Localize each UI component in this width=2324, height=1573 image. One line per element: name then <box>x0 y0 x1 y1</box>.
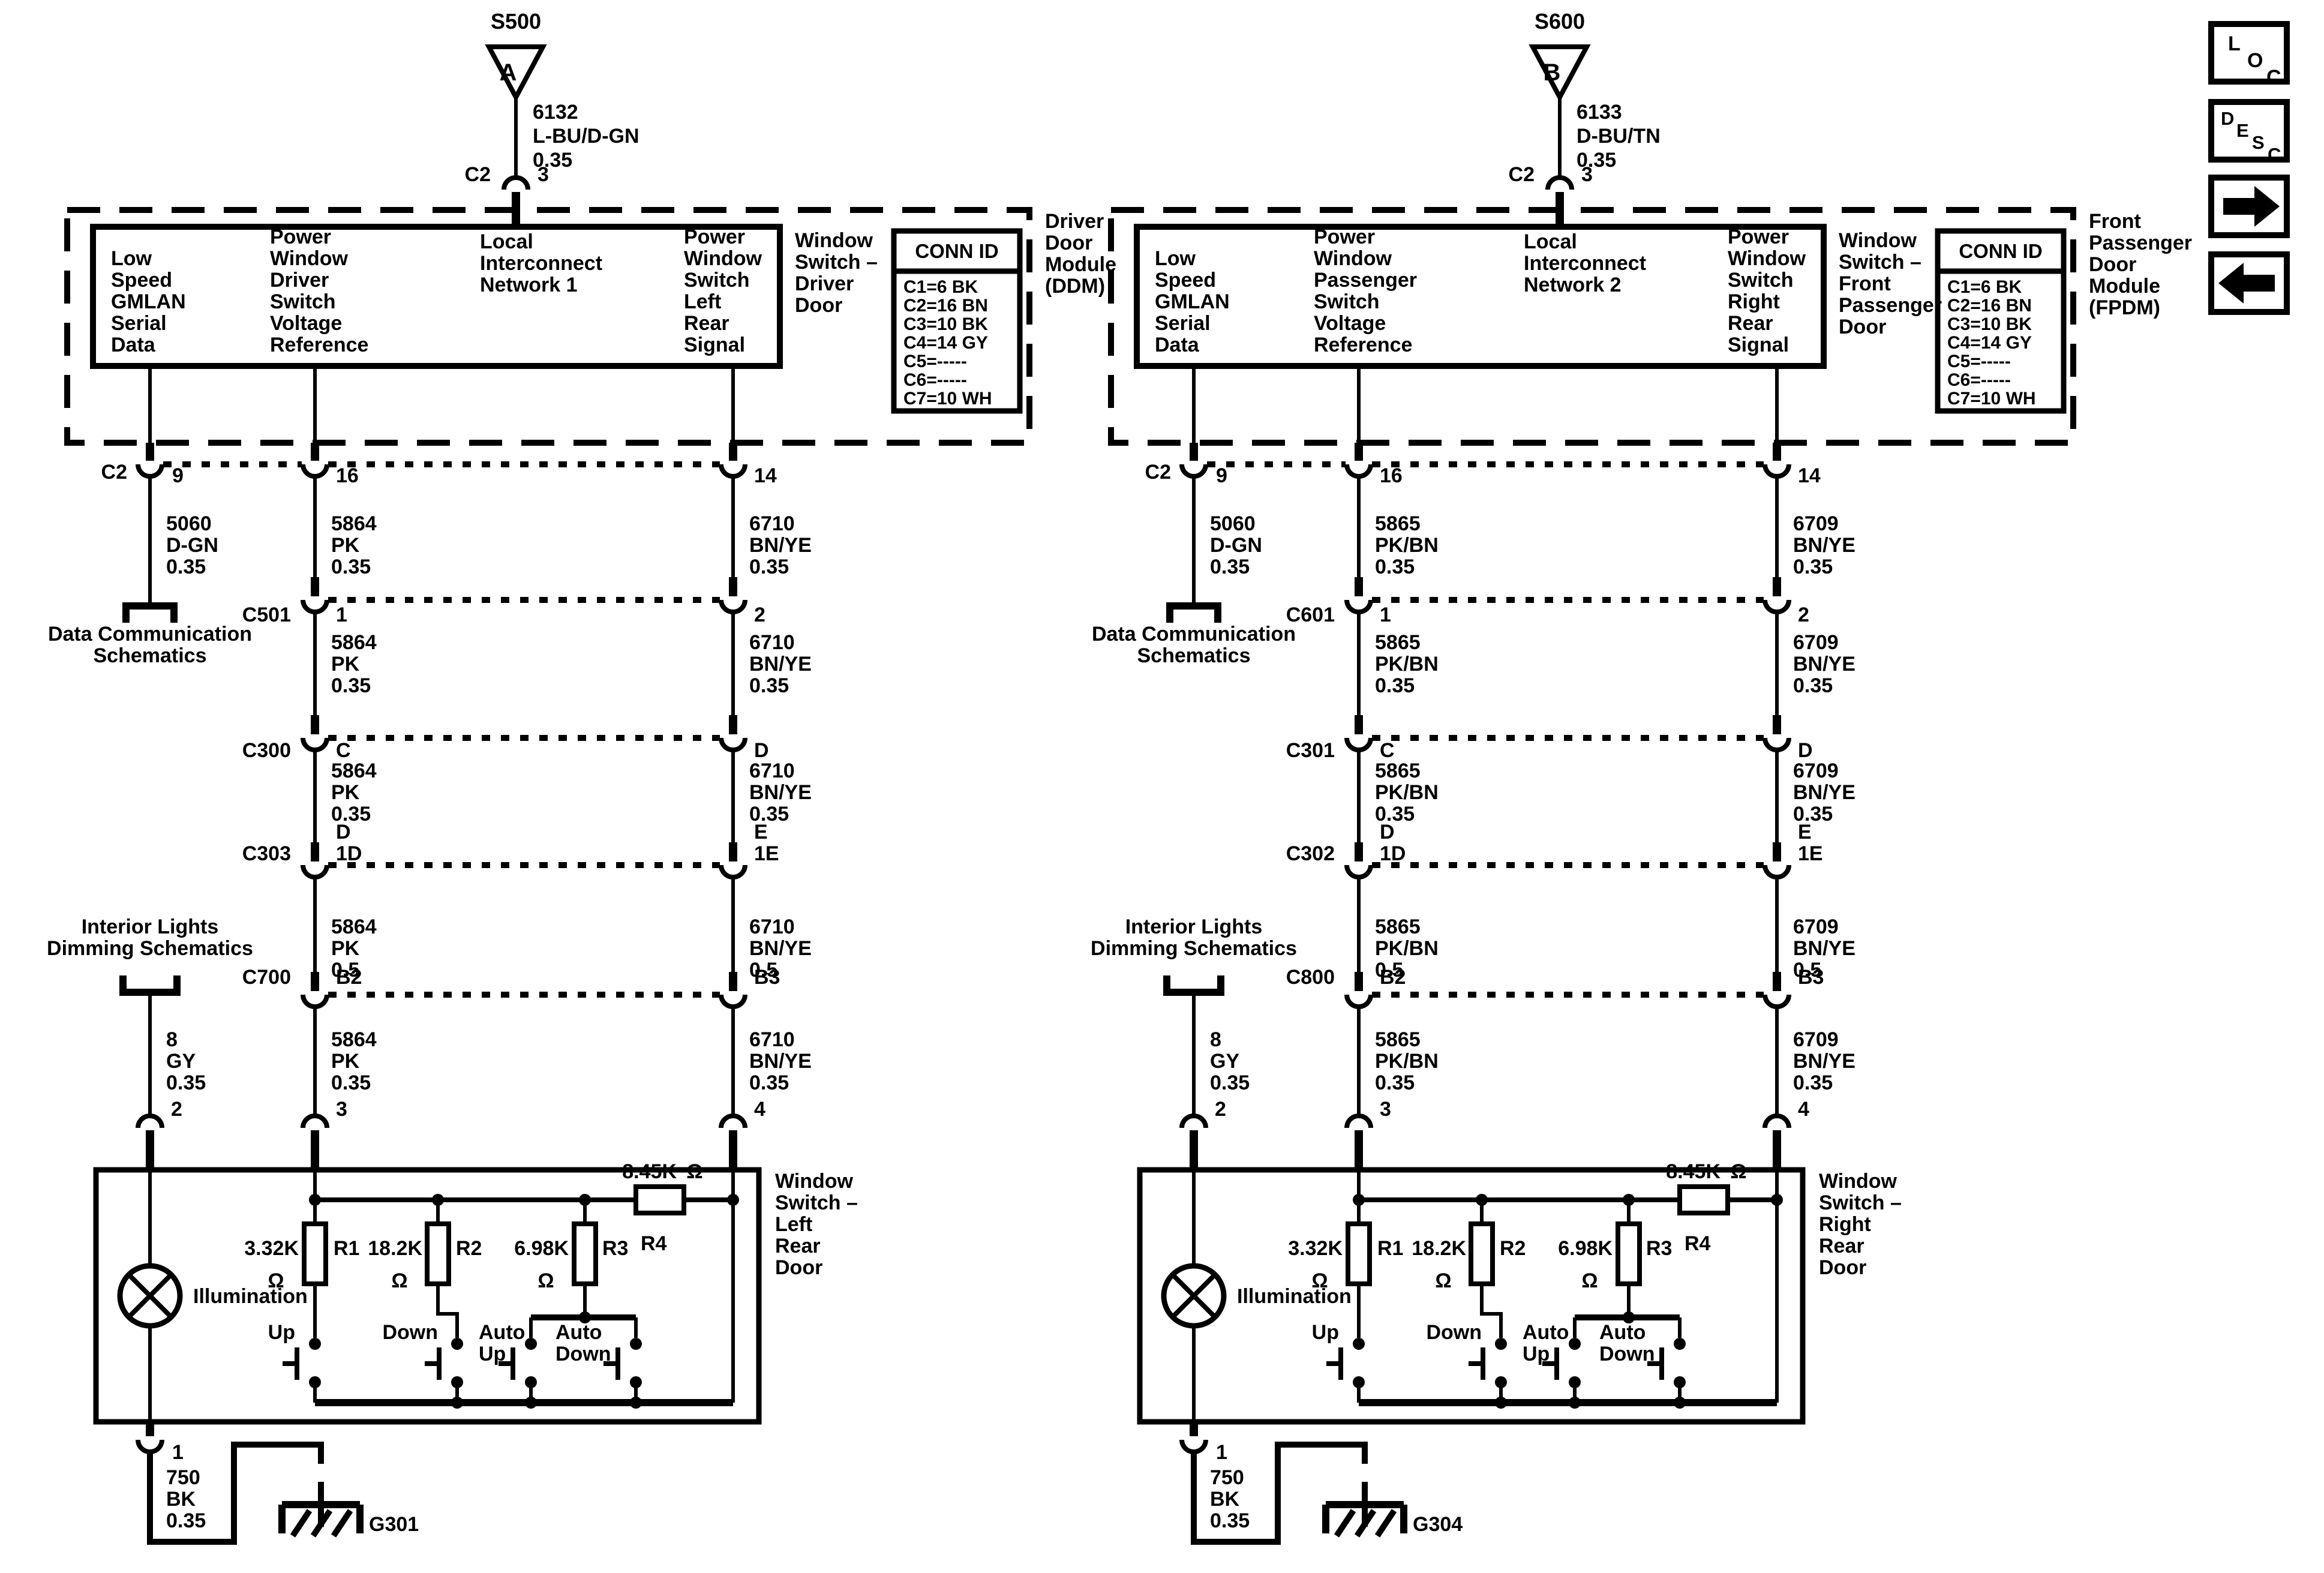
illumination-label: Illumination <box>1237 1285 1352 1308</box>
connector-label: C601 <box>1286 604 1335 626</box>
wire-label: 6710 <box>749 915 795 938</box>
pin-label: 9 <box>1216 464 1227 487</box>
pin-label: 1 <box>172 1441 184 1464</box>
connector-label: C302 <box>1286 842 1335 865</box>
component-label: Window <box>775 1170 854 1193</box>
module-pin-function: Power <box>1314 226 1375 248</box>
conn-id-row: C3=10 BK <box>903 314 988 334</box>
conn-id-row: C5=----- <box>1947 352 2011 371</box>
wire-label: 6709 <box>1793 915 1839 938</box>
schematic-reference-label: Schematics <box>94 644 207 667</box>
pin-label: 1 <box>1380 604 1391 626</box>
wire-label: PK/BN <box>1375 534 1439 557</box>
module-pin-function: Rear <box>684 312 729 335</box>
ohm-symbol: Ω <box>391 1269 407 1292</box>
module-pin-function: Low <box>1155 247 1196 270</box>
wire-label: PK <box>331 781 360 804</box>
module-pin-function: Network 1 <box>480 274 578 296</box>
module-name-label: (FPDM) <box>2089 296 2160 319</box>
pin-label: E <box>754 821 768 843</box>
wire-label: 0.35 <box>1793 674 1833 697</box>
wire-label: 5865 <box>1375 915 1421 938</box>
pin-label: D <box>1380 821 1395 843</box>
pin-label: 14 <box>754 464 777 487</box>
module-pin-function: Reference <box>1314 334 1412 356</box>
module-pin-function: Switch <box>1728 269 1794 292</box>
module-pin-function: Serial <box>111 312 167 335</box>
wire-label: 8 <box>166 1028 178 1051</box>
wire-label: BN/YE <box>749 534 812 557</box>
pin-label: 2 <box>1215 1098 1226 1121</box>
splice-letter-label: B <box>1544 59 1561 86</box>
wire-label: BN/YE <box>749 781 812 804</box>
ground-icon <box>282 1482 360 1536</box>
ohm-symbol: Ω <box>268 1269 284 1292</box>
module-pin-function: Speed <box>111 269 172 292</box>
pin-label: B3 <box>754 966 780 989</box>
component-label: Switch – <box>795 251 878 274</box>
resistor-value: 3.32K <box>244 1237 299 1260</box>
switch-position-label: Auto <box>556 1321 602 1344</box>
wire-label: 0.35 <box>1375 674 1415 697</box>
switch-position-label: Down <box>556 1343 611 1365</box>
wire-label: GY <box>1210 1050 1239 1073</box>
wire-label: 5864 <box>331 1028 377 1051</box>
resistor-r1 <box>304 1224 326 1284</box>
wire-label: 6710 <box>749 512 795 535</box>
conn-id-title: CONN ID <box>1959 240 2042 262</box>
module-name-label: Passenger <box>2089 232 2192 254</box>
connector-label: C700 <box>242 966 291 989</box>
component-label: Door <box>775 1256 822 1279</box>
wire-label: PK <box>331 1050 360 1073</box>
pin-label: 2 <box>1798 604 1809 626</box>
module-name-label: Front <box>2089 210 2141 233</box>
connector-label: C501 <box>242 604 291 626</box>
ohm-symbol: Ω <box>1311 1269 1328 1292</box>
pin-label: 1E <box>754 842 779 865</box>
component-label: Passenger <box>1839 294 1942 317</box>
pin-label: 9 <box>172 464 184 487</box>
offpage-terminal-icon <box>126 606 174 623</box>
conn-id-row: C3=10 BK <box>1947 314 2032 334</box>
resistor-name: R2 <box>1500 1237 1526 1260</box>
module-pin-function: Voltage <box>270 312 342 335</box>
wire-label: 0.35 <box>749 1071 789 1094</box>
wire-label: 5865 <box>1375 760 1421 782</box>
component-label: Rear <box>775 1235 821 1257</box>
wire-label: 750 <box>166 1466 200 1489</box>
wire-label: 6132 <box>533 101 578 124</box>
module-pin-function: Data <box>1155 334 1200 356</box>
loc-letter: L <box>2228 32 2241 55</box>
wire-label: 6710 <box>749 1028 795 1051</box>
pin-label: 1E <box>1798 842 1823 865</box>
wire-label: D-GN <box>166 534 218 557</box>
wire-label: 0.35 <box>749 674 789 697</box>
arrow-left-icon <box>2218 263 2275 304</box>
conn-id-row: C4=14 GY <box>903 333 988 353</box>
schematic-reference-label: Dimming Schematics <box>47 937 253 960</box>
wire-label: 0.35 <box>749 556 789 578</box>
pin-label: 4 <box>754 1098 765 1121</box>
module-pin-function: Serial <box>1155 312 1211 335</box>
switch-position-label: Up <box>1312 1321 1339 1344</box>
conn-id-row: C7=10 WH <box>903 389 992 409</box>
switch-position-label: Down <box>1426 1321 1482 1344</box>
wire-label: PK/BN <box>1375 1050 1439 1073</box>
component-label: Driver <box>795 272 854 295</box>
wire-label: BN/YE <box>1793 534 1855 557</box>
wire-label: 6709 <box>1793 1028 1839 1051</box>
switch-position-label: Up <box>1523 1343 1550 1365</box>
conn-id-row: C6=----- <box>1947 370 2011 390</box>
connector-label: C300 <box>242 739 291 762</box>
resistor-value: 18.2K <box>368 1237 422 1260</box>
pin-label: B3 <box>1798 966 1824 989</box>
module-name-label: Module <box>2089 275 2160 298</box>
pin-label: D <box>754 739 769 762</box>
pin-label: B2 <box>1380 966 1406 989</box>
splice-id-label: S500 <box>491 9 541 34</box>
module-name-label: Module <box>1045 253 1116 276</box>
splice-letter-label: A <box>500 59 517 86</box>
desc-letter: S <box>2252 132 2265 153</box>
wire-label: 5060 <box>166 512 212 535</box>
switch-position-label: Auto <box>1523 1321 1569 1344</box>
module-pin-function: Window <box>270 247 349 270</box>
module-pin-function: Left <box>684 290 721 313</box>
wire-label: 750 <box>1210 1466 1244 1489</box>
module-pin-function: Interconnect <box>480 252 602 275</box>
wire-label: 5864 <box>331 512 377 535</box>
schematic-reference-label: Schematics <box>1137 644 1251 667</box>
loc-letter: C <box>2266 66 2281 89</box>
module-pin-function: Switch <box>270 290 336 313</box>
wire-label: 5865 <box>1375 512 1421 535</box>
wire-label: PK <box>331 937 360 960</box>
ohm-symbol: Ω <box>1435 1269 1451 1292</box>
pin-label: 1 <box>336 604 347 626</box>
connector-label: C2 <box>1145 461 1171 484</box>
resistor-r2 <box>427 1224 449 1284</box>
pin-label: B2 <box>336 966 362 989</box>
wire-label: PK/BN <box>1375 653 1439 676</box>
connector-label: C301 <box>1286 739 1335 762</box>
connector-label: C2 <box>465 163 491 186</box>
pin-label: 4 <box>1798 1098 1809 1121</box>
switch-position-label: Up <box>479 1343 506 1365</box>
wire-label: L-BU/D-GN <box>533 125 639 148</box>
conn-id-row: C6=----- <box>903 370 967 390</box>
wiring-diagram-page: S500A6132L-BU/D-GN0.35C23LowSpeedGMLANSe… <box>0 0 2324 1573</box>
switch-position-label: Up <box>268 1321 295 1344</box>
module-pin-function: Network 2 <box>1524 274 1622 296</box>
wire-label: 0.35 <box>1210 1071 1250 1094</box>
wire-label: 0.35 <box>331 556 371 578</box>
component-label: Door <box>1839 316 1886 338</box>
wiring-diagram: S500A6132L-BU/D-GN0.35C23LowSpeedGMLANSe… <box>0 0 2324 1573</box>
component-label: Left <box>775 1213 812 1236</box>
pin-label: 1D <box>336 842 362 865</box>
pin-label: 3 <box>336 1098 347 1121</box>
module-pin-function: GMLAN <box>111 290 186 313</box>
wire-label: 5060 <box>1210 512 1256 535</box>
wire-label: PK/BN <box>1375 781 1439 804</box>
connector-label: C2 <box>101 461 127 484</box>
resistor-name: R3 <box>1646 1237 1672 1260</box>
component-label: Switch – <box>775 1191 858 1214</box>
pin-label: D <box>336 821 351 843</box>
module-pin-function: Window <box>684 247 762 270</box>
offpage-terminal-icon <box>123 975 177 992</box>
wire-label: 6133 <box>1577 101 1622 124</box>
switch-contact-up <box>283 1338 321 1403</box>
resistor-name: R4 <box>1685 1232 1711 1255</box>
wire-label: 0.35 <box>1210 1509 1250 1532</box>
module-pin-function: Power <box>684 226 745 248</box>
resistor-name: R1 <box>334 1237 359 1260</box>
module-pin-function: Reference <box>270 334 368 356</box>
component-label: Window <box>1819 1170 1897 1193</box>
wire-label: BN/YE <box>1793 937 1855 960</box>
module-pin-function: Driver <box>270 269 329 292</box>
module-box <box>93 227 780 366</box>
resistor-name: R2 <box>456 1237 482 1260</box>
wire-label: 5864 <box>331 915 377 938</box>
switch-contact-down <box>425 1338 463 1403</box>
pin-label: 2 <box>754 604 765 626</box>
conn-id-row: C1=6 BK <box>1947 277 2022 297</box>
conn-id-title: CONN ID <box>915 240 998 262</box>
component-label: Front <box>1839 272 1891 295</box>
connector-icon <box>504 178 528 190</box>
module-pin-function: Switch <box>684 269 750 292</box>
resistor-name: R3 <box>602 1237 628 1260</box>
switch-position-label: Auto <box>479 1321 525 1344</box>
conn-id-row: C4=14 GY <box>1947 333 2032 353</box>
schematic-reference-label: Interior Lights <box>82 915 219 938</box>
wire-label: PK/BN <box>1375 937 1439 960</box>
component-label: Window <box>795 229 873 252</box>
loc-letter: O <box>2247 49 2263 72</box>
wire-label: 0.35 <box>1375 556 1415 578</box>
schematic-reference-label: Data Communication <box>48 623 252 646</box>
resistor-name: R4 <box>641 1232 667 1255</box>
module-name-label: Door <box>1045 232 1092 254</box>
pin-label: D <box>1798 739 1813 762</box>
wire-label: BN/YE <box>749 1050 812 1073</box>
switch-position-label: Down <box>1599 1343 1655 1365</box>
wire-label: 6709 <box>1793 631 1839 654</box>
splice-id-label: S600 <box>1535 9 1585 34</box>
conn-id-row: C2=16 BN <box>903 296 988 316</box>
module-pin-function: Voltage <box>1314 312 1386 335</box>
pin-label: 3 <box>1581 163 1593 186</box>
illumination-label: Illumination <box>193 1285 308 1308</box>
module-pin-function: Passenger <box>1314 269 1417 292</box>
wire-label: 0.35 <box>166 556 206 578</box>
module-pin-function: GMLAN <box>1155 290 1230 313</box>
wire-label: BK <box>166 1488 196 1511</box>
wire-label: 5865 <box>1375 631 1421 654</box>
desc-letter: C <box>2268 144 2281 165</box>
module-pin-function: Low <box>111 247 152 270</box>
module-pin-function: Local <box>480 230 533 253</box>
component-label: Door <box>795 294 842 317</box>
ohm-symbol: Ω <box>1730 1160 1746 1183</box>
wire-label: 0.35 <box>166 1509 206 1532</box>
module-pin-function: Signal <box>684 334 745 356</box>
connector-label: C303 <box>242 842 291 865</box>
switch-position-label: Auto <box>1599 1321 1646 1344</box>
resistor-value: 8.45K <box>1666 1160 1721 1183</box>
ground-label: G301 <box>369 1513 419 1536</box>
wire-label: 0.35 <box>1793 556 1833 578</box>
component-label: Right <box>1819 1213 1871 1236</box>
module-pin-function: Local <box>1524 230 1577 253</box>
ohm-symbol: Ω <box>1581 1269 1598 1292</box>
component-label: Switch – <box>1819 1191 1902 1214</box>
pin-label: E <box>1798 821 1812 843</box>
wire-label: 5864 <box>331 760 377 782</box>
schematic-reference-label: Interior Lights <box>1125 915 1263 938</box>
module-pin-function: Window <box>1728 247 1806 270</box>
prev-page-button[interactable] <box>2211 254 2287 312</box>
ground-label: G304 <box>1413 1513 1463 1536</box>
module-name-label: Driver <box>1045 210 1104 233</box>
conn-id-row: C5=----- <box>903 352 967 371</box>
wire-label: PK <box>331 534 360 557</box>
module-name-label: Door <box>2089 253 2136 276</box>
wire-label: BN/YE <box>749 653 812 676</box>
resistor-name: R1 <box>1377 1237 1403 1260</box>
wire-label: BN/YE <box>1793 781 1855 804</box>
module-pin-function: Power <box>1728 226 1789 248</box>
conn-id-row: C7=10 WH <box>1947 389 2036 409</box>
wire-label: 0.35 <box>1210 556 1250 578</box>
resistor-value: 8.45K <box>622 1160 677 1183</box>
desc-letter: E <box>2236 120 2249 141</box>
wire-label: D-GN <box>1210 534 1262 557</box>
resistor-value: 6.98K <box>514 1237 569 1260</box>
module-pin-function: Interconnect <box>1524 252 1646 275</box>
module-name-label: (DDM) <box>1045 275 1105 298</box>
wire-label: BN/YE <box>749 937 812 960</box>
wire-label: D-BU/TN <box>1577 125 1661 148</box>
wire-label: 6710 <box>749 631 795 654</box>
pin-label: 3 <box>1380 1098 1391 1121</box>
wire-label: 0.35 <box>1375 1071 1415 1094</box>
component-label: Switch – <box>1839 251 1921 274</box>
resistor-r4 <box>636 1187 684 1213</box>
wire-label: 0.35 <box>331 1071 371 1094</box>
wire-label: 5865 <box>1375 1028 1421 1051</box>
resistor-value: 3.32K <box>1288 1237 1343 1260</box>
pin-label: 1 <box>1216 1441 1227 1464</box>
wire-label: 0.35 <box>1793 1071 1833 1094</box>
pin-label: 16 <box>1380 464 1403 487</box>
wire-label: 6709 <box>1793 512 1839 535</box>
wire-label: BN/YE <box>1793 1050 1855 1073</box>
conn-id-row: C1=6 BK <box>903 277 978 297</box>
pin-label: C <box>1380 739 1395 762</box>
switch-position-label: Down <box>382 1321 438 1344</box>
pin-label: 2 <box>171 1098 182 1121</box>
module-pin-function: Right <box>1728 290 1780 313</box>
connector-icon <box>138 464 162 476</box>
component-label: Rear <box>1819 1235 1864 1257</box>
resistor-value: 6.98K <box>1558 1237 1613 1260</box>
wire-label: BK <box>1210 1488 1240 1511</box>
wire-label: 0.35 <box>331 674 371 697</box>
wire-label: BN/YE <box>1793 653 1855 676</box>
pin-label: 1D <box>1380 842 1406 865</box>
resistor-r3 <box>574 1224 596 1284</box>
arrow-right-icon <box>2223 186 2280 227</box>
module-pin-function: Speed <box>1155 269 1216 292</box>
wire-label: 0.35 <box>166 1071 206 1094</box>
schematic-reference-label: Dimming Schematics <box>1091 937 1297 960</box>
pin-label: 3 <box>538 163 549 186</box>
next-page-button[interactable] <box>2211 178 2287 235</box>
pin-label: C <box>336 739 351 762</box>
module-pin-function: Switch <box>1314 290 1380 313</box>
wire-label: 5864 <box>331 631 377 654</box>
ohm-symbol: Ω <box>686 1160 702 1183</box>
pin-label: 14 <box>1798 464 1821 487</box>
wire-label: PK <box>331 653 360 676</box>
wire-label: 8 <box>1210 1028 1221 1051</box>
component-label: Door <box>1819 1256 1866 1279</box>
module-pin-function: Power <box>270 226 331 248</box>
conn-id-row: C2=16 BN <box>1947 296 2032 316</box>
pin-label: 16 <box>336 464 359 487</box>
module-pin-function: Rear <box>1728 312 1773 335</box>
schematic-reference-label: Data Communication <box>1092 623 1296 646</box>
wire-label: GY <box>166 1050 196 1073</box>
component-label: Window <box>1839 229 1917 252</box>
module-pin-function: Signal <box>1728 334 1789 356</box>
connector-label: C800 <box>1286 966 1335 989</box>
connector-label: C2 <box>1509 163 1535 186</box>
ohm-symbol: Ω <box>538 1269 554 1292</box>
resistor-value: 18.2K <box>1412 1237 1466 1260</box>
desc-letter: D <box>2221 108 2234 129</box>
module-pin-function: Window <box>1314 247 1392 270</box>
module-pin-function: Data <box>111 334 156 356</box>
wire-label: 6710 <box>749 760 795 782</box>
wire-label: 6709 <box>1793 760 1839 782</box>
